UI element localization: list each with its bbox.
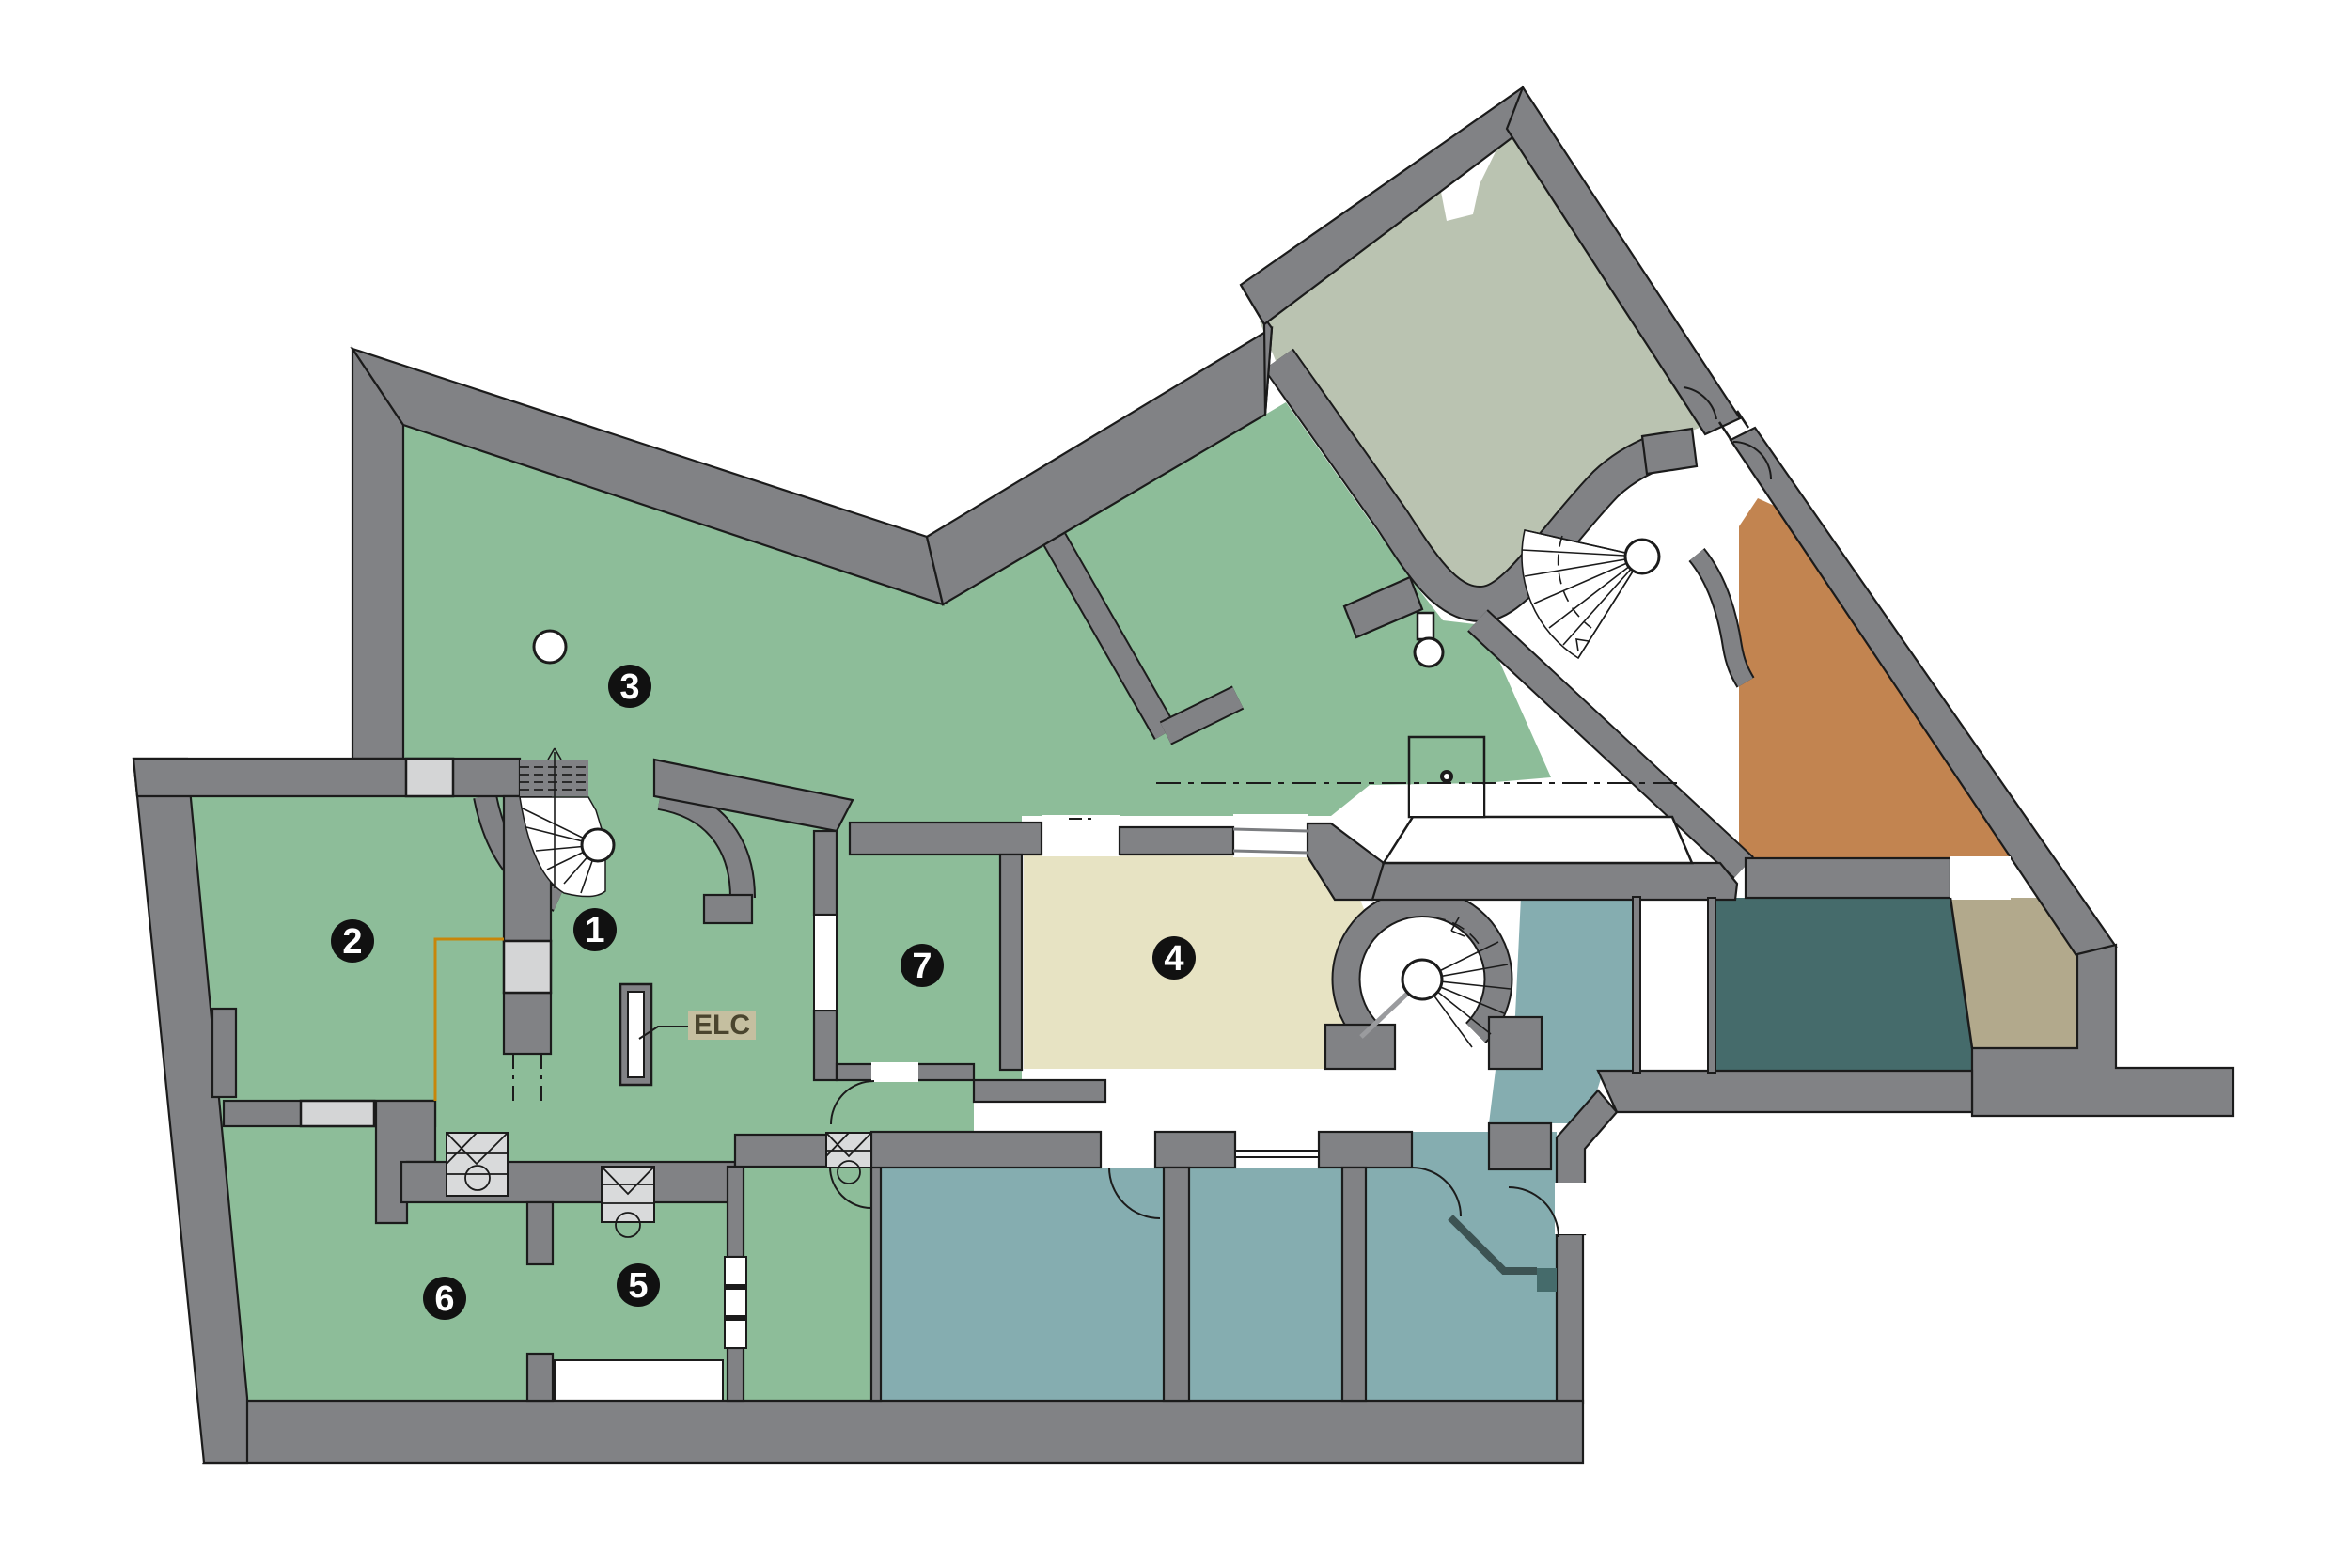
svg-text:6: 6 <box>434 1279 454 1319</box>
svg-text:3: 3 <box>619 667 639 707</box>
svg-text:4: 4 <box>1164 939 1183 979</box>
svg-text:5: 5 <box>628 1266 648 1306</box>
svg-text:1: 1 <box>585 911 604 950</box>
svg-text:ELC: ELC <box>694 1010 750 1041</box>
svg-text:7: 7 <box>912 947 932 986</box>
svg-text:2: 2 <box>342 922 362 962</box>
